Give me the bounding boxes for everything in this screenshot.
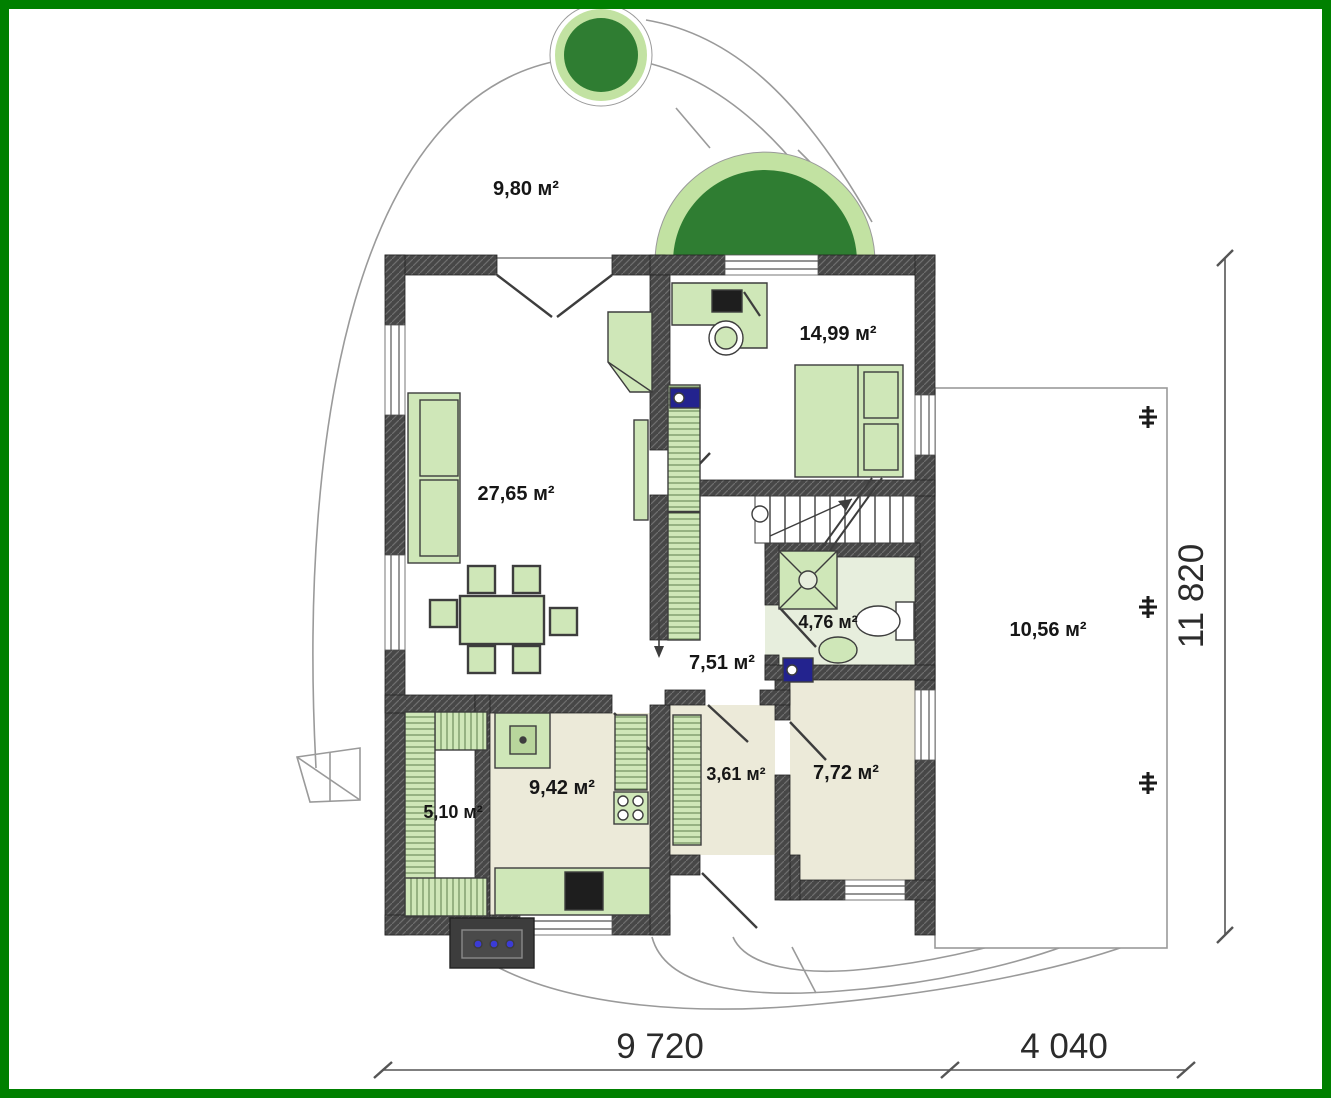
kitchen-label: 9,42 м² — [529, 777, 595, 799]
living-room-label: 27,65 м² — [477, 483, 554, 505]
dining-chair — [468, 646, 495, 673]
terrace-label: 10,56 м² — [1009, 619, 1086, 641]
bathroom-fixture — [783, 658, 813, 682]
utility-room-label: 7,72 м² — [813, 762, 879, 784]
bathroom-label: 4,76 м² — [798, 612, 857, 632]
shower — [779, 551, 837, 609]
entry-hall-label: 3,61 м² — [706, 764, 765, 784]
front-double-door — [497, 258, 612, 317]
exterior-steps — [297, 748, 360, 802]
dining-chair — [430, 600, 457, 627]
dining-chair — [513, 566, 540, 593]
dim-width-terrace: 4 040 — [1020, 1027, 1108, 1066]
dim-height-total: 11 820 — [1172, 544, 1211, 648]
dining-chair — [513, 646, 540, 673]
terrace-area — [935, 388, 1167, 948]
dining-table-set — [430, 566, 577, 673]
pantry-label: 5,10 м² — [423, 802, 482, 822]
hall-fixture — [670, 388, 700, 408]
bathroom-sink — [819, 637, 857, 663]
bedroom-label: 14,99 м² — [799, 323, 876, 345]
dining-chair — [550, 608, 577, 635]
walkway-tick-1 — [676, 108, 710, 148]
front-yard-label: 9,80 м² — [493, 178, 559, 200]
entry-wardrobe — [673, 715, 701, 845]
dining-table — [460, 596, 544, 644]
bedroom-right-window — [915, 395, 935, 455]
tree-symbol — [550, 4, 652, 106]
floor-plan-page: 9,80 м² 14,99 м² 27,65 м² 4,76 м² 7,51 м… — [0, 0, 1331, 1098]
oven — [565, 872, 603, 910]
bed — [795, 365, 903, 477]
sofa — [408, 393, 460, 563]
living-left-window-2 — [385, 555, 405, 650]
utility-right-window — [915, 690, 935, 760]
fridge — [615, 715, 647, 790]
dim-width-main: 9 720 — [616, 1027, 704, 1066]
stair-newel — [752, 506, 768, 522]
utility-bottom-window — [845, 880, 905, 900]
living-left-window-1 — [385, 325, 405, 415]
floor-plan-drawing: 9,80 м² 14,99 м² 27,65 м² 4,76 м² 7,51 м… — [0, 0, 1331, 1098]
hallway-label: 7,51 м² — [689, 652, 755, 674]
computer-monitor — [712, 290, 742, 312]
bedroom-top-window — [725, 255, 818, 275]
corner-wardrobe — [608, 312, 652, 392]
hob — [614, 792, 648, 824]
entrance-canopy — [655, 152, 875, 262]
back-entrance-door — [702, 873, 757, 928]
dining-chair — [468, 566, 495, 593]
utility-box — [450, 918, 534, 968]
tv-board — [634, 420, 648, 520]
floor-fills — [490, 545, 920, 915]
